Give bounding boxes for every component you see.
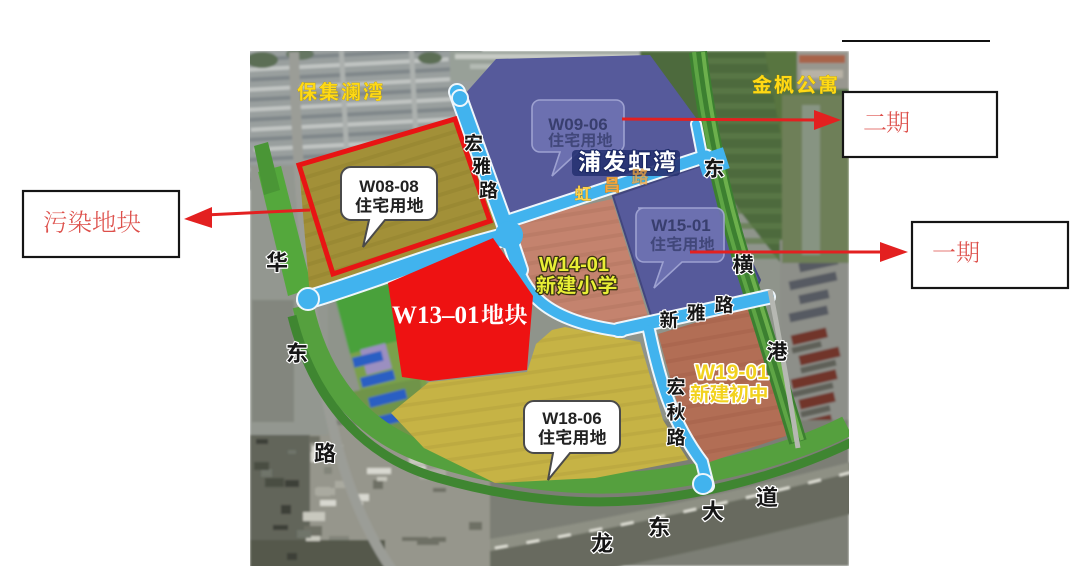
svg-text:W19-01: W19-01	[695, 361, 769, 384]
svg-text:W08-08: W08-08	[359, 177, 419, 196]
svg-text:W18-06: W18-06	[542, 409, 602, 428]
svg-text:W09-06: W09-06	[548, 115, 608, 134]
svg-text:W15-01: W15-01	[651, 216, 711, 235]
svg-text:W13–01: W13–01	[392, 302, 480, 329]
svg-text:W14-01: W14-01	[539, 254, 609, 276]
